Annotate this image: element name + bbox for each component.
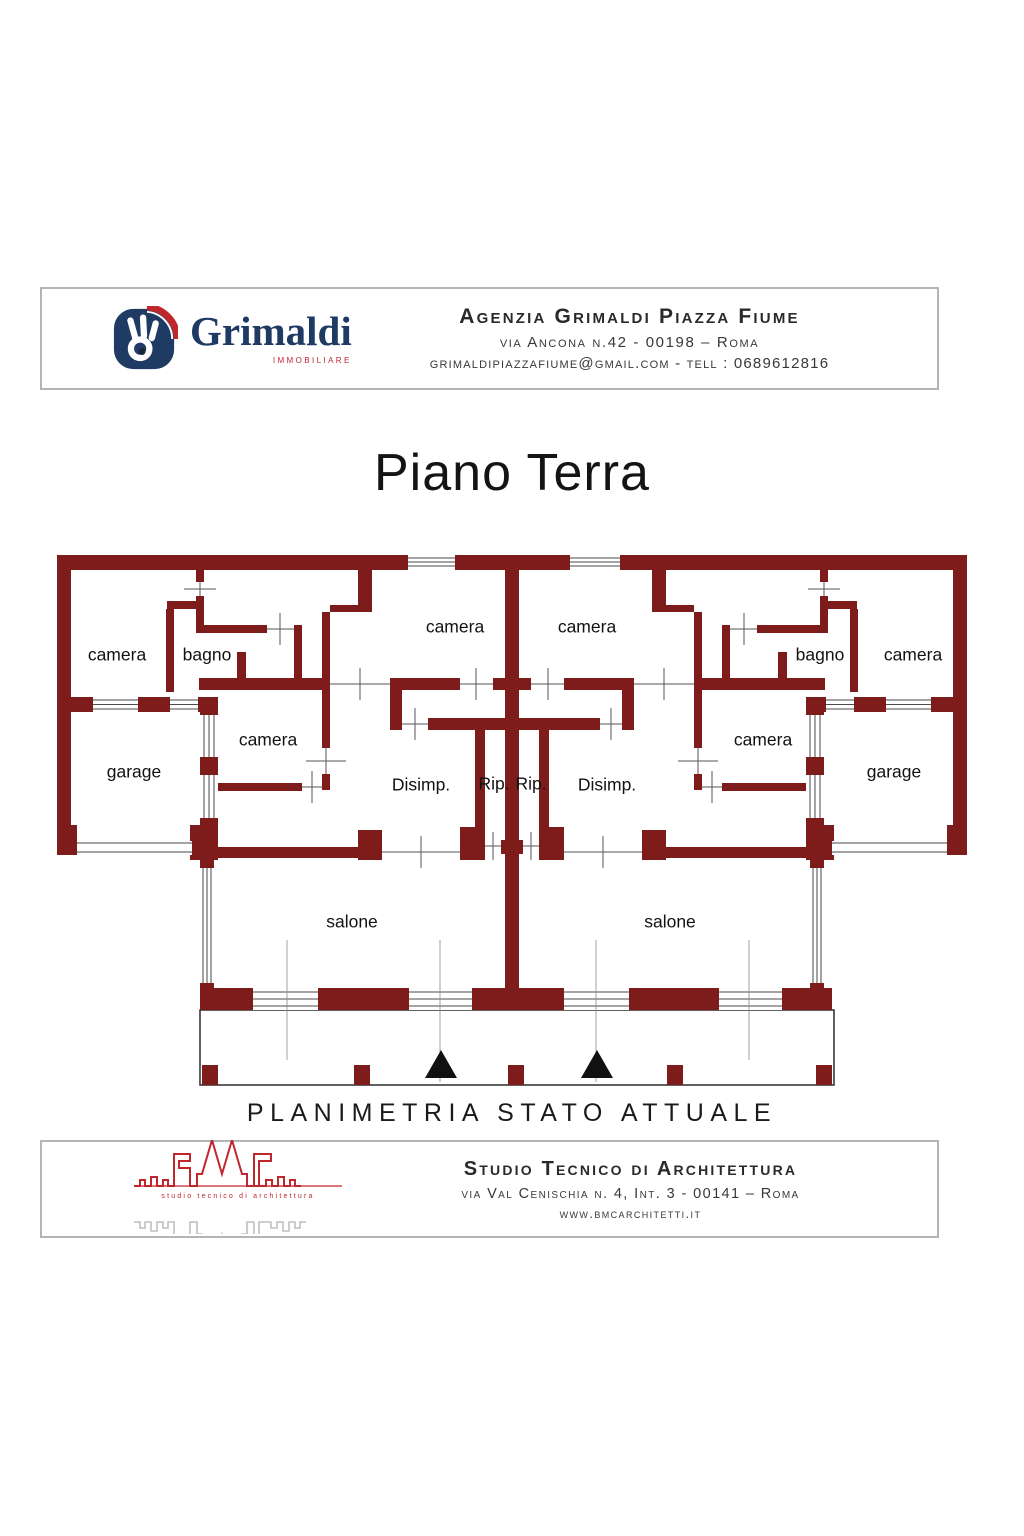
studio-website: www.bmcarchitetti.it bbox=[404, 1206, 857, 1221]
studio-address: via Val Cenischia n. 4, Int. 3 - 00141 –… bbox=[404, 1186, 857, 1202]
studio-name: Studio Tecnico di Architettura bbox=[404, 1158, 857, 1181]
bmc-logo: studio tecnico di architettura bbox=[104, 1140, 404, 1239]
studio-info: Studio Tecnico di Architettura via Val C… bbox=[404, 1158, 937, 1221]
bmc-logo-caption: studio tecnico di architettura bbox=[161, 1193, 314, 1200]
plan-caption: PLANIMETRIA STATO ATTUALE bbox=[0, 1099, 1024, 1128]
floor-plan bbox=[0, 0, 1024, 1536]
bmc-logo-icon: studio tecnico di architettura bbox=[104, 1140, 372, 1234]
plan-walls bbox=[57, 555, 967, 1085]
studio-footer: studio tecnico di architettura Studio Te… bbox=[40, 1140, 939, 1238]
document-page: Grimaldi immobiliare Agenzia Grimaldi Pi… bbox=[0, 0, 1024, 1536]
